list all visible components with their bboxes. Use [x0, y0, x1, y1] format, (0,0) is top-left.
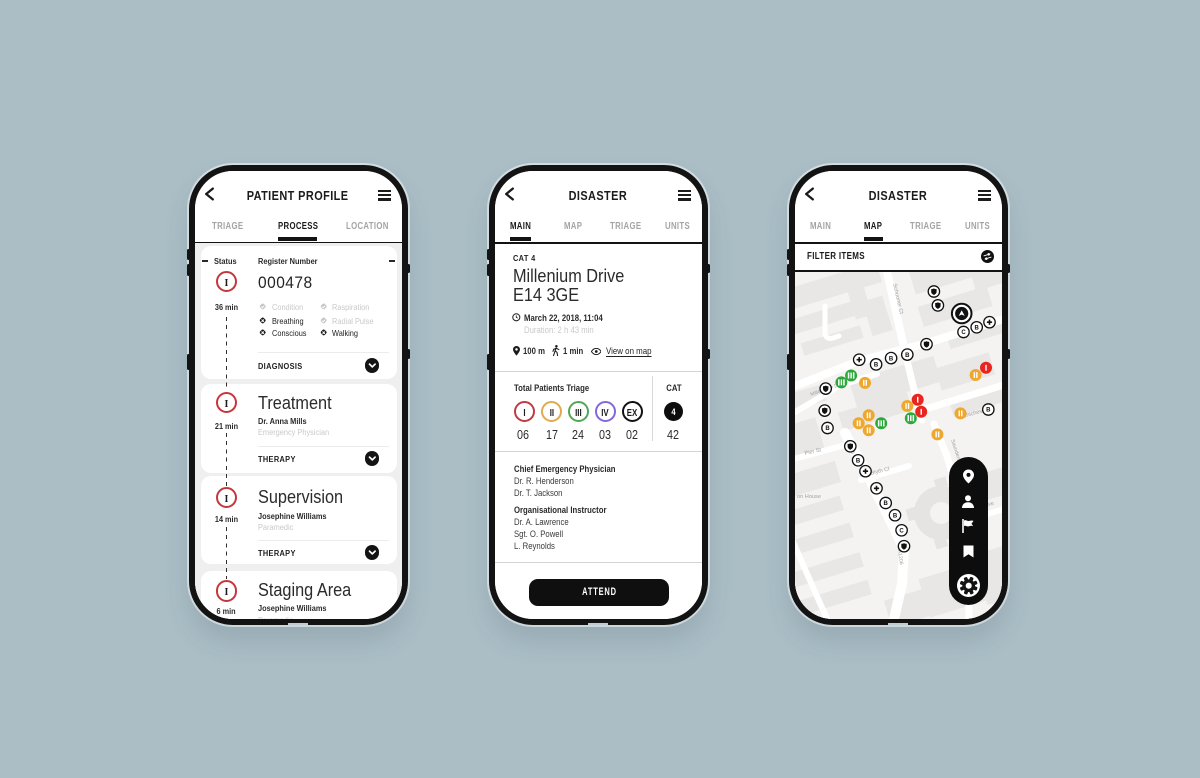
svg-text:B: B: [974, 326, 979, 332]
svg-text:B: B: [883, 501, 888, 507]
svg-text:B: B: [905, 353, 910, 359]
svg-text:B: B: [855, 459, 860, 465]
svg-text:B: B: [986, 408, 991, 414]
svg-text:on House: on House: [797, 494, 821, 500]
svg-text:C: C: [899, 529, 904, 535]
svg-text:B: B: [888, 356, 893, 362]
svg-text:B: B: [892, 513, 897, 519]
svg-text:C: C: [961, 330, 966, 336]
svg-text:B: B: [825, 426, 830, 432]
svg-text:B: B: [873, 363, 878, 369]
